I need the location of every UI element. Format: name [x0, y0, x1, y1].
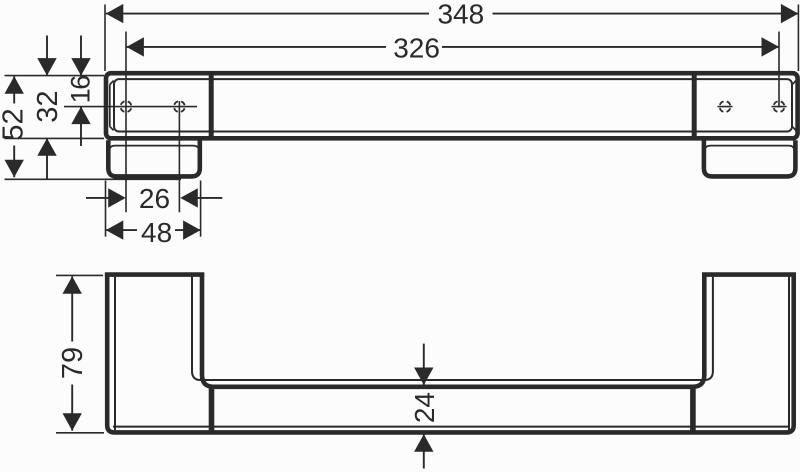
svg-text:348: 348: [437, 0, 484, 30]
svg-text:24: 24: [409, 392, 440, 423]
svg-text:32: 32: [32, 90, 64, 122]
svg-text:16: 16: [66, 76, 96, 104]
svg-text:52: 52: [0, 108, 30, 140]
svg-text:48: 48: [141, 217, 172, 248]
svg-text:326: 326: [393, 32, 440, 63]
svg-text:79: 79: [57, 347, 89, 379]
svg-text:26: 26: [139, 183, 170, 214]
